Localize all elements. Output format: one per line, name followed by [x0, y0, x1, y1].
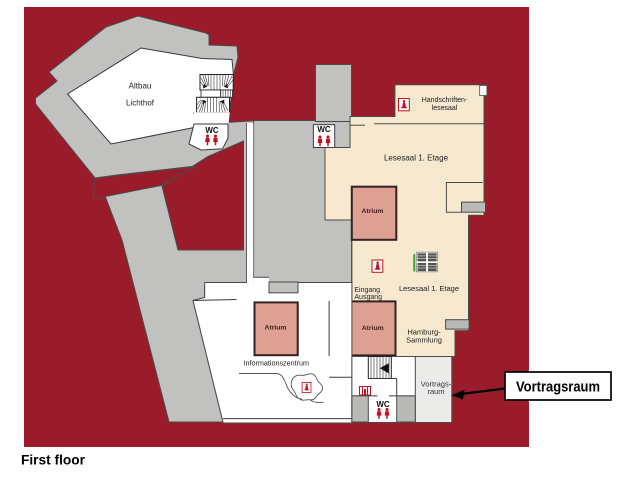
svg-text:Lesesaal 1. Etage: Lesesaal 1. Etage — [384, 154, 449, 163]
svg-text:Sammlung: Sammlung — [406, 336, 442, 345]
svg-text:Eingang: Eingang — [354, 287, 380, 294]
svg-text:Ausgang: Ausgang — [354, 294, 382, 301]
svg-text:lesesaal: lesesaal — [432, 105, 458, 112]
svg-text:WC: WC — [317, 125, 331, 134]
svg-text:raum: raum — [427, 387, 444, 396]
svg-text:Altbau: Altbau — [129, 82, 152, 91]
svg-text:WC: WC — [205, 126, 219, 135]
svg-text:Lesesaal 1. Etage: Lesesaal 1. Etage — [399, 284, 459, 293]
svg-text:Vortragsraum: Vortragsraum — [516, 379, 600, 396]
svg-text:Lichthof: Lichthof — [126, 99, 155, 108]
svg-text:WC: WC — [376, 400, 390, 409]
svg-text:Handschriften-: Handschriften- — [422, 97, 468, 104]
svg-text:Atrium: Atrium — [265, 325, 287, 332]
svg-text:Atrium: Atrium — [362, 325, 384, 332]
svg-text:Informationszentrum: Informationszentrum — [244, 359, 310, 368]
svg-text:Atrium: Atrium — [362, 208, 384, 215]
svg-text:First floor: First floor — [21, 452, 86, 468]
